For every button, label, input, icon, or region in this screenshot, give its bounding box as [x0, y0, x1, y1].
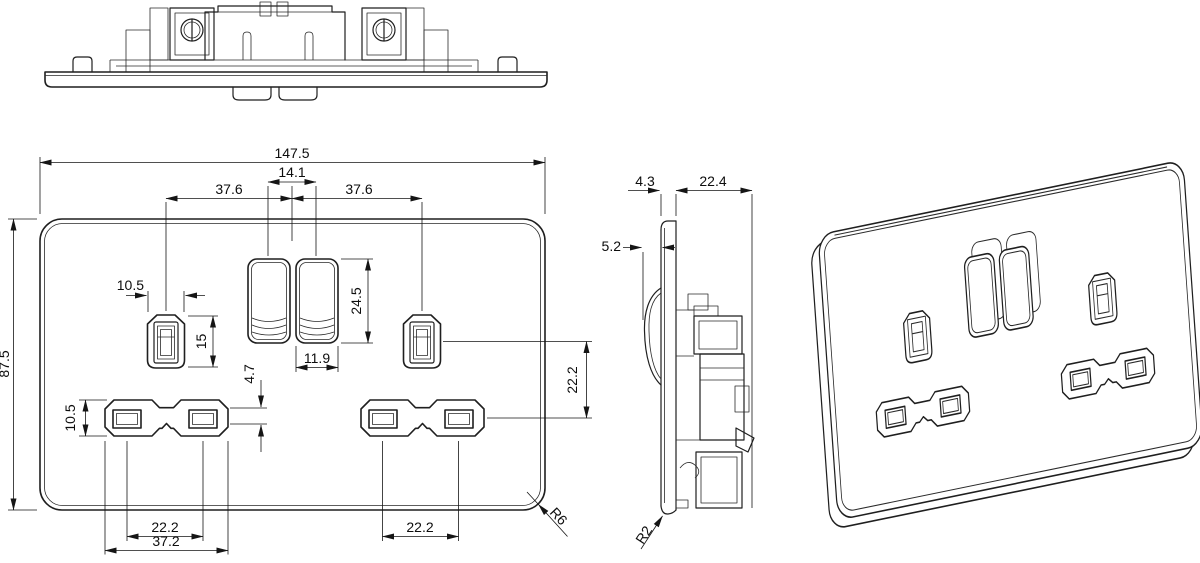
side-mechanism — [676, 294, 754, 508]
dim-bridge-height: 4.7 — [241, 364, 257, 384]
side-view: 4.3 22.4 5.2 R2 — [602, 173, 754, 549]
dim-plate-thickness: 4.3 — [635, 173, 655, 189]
dim-overall-height: 87.5 — [0, 350, 12, 377]
dim-earth-offset-left: 37.6 — [215, 181, 242, 197]
dim-mechanism-depth: 22.4 — [699, 173, 726, 189]
top-view-mechanism — [110, 2, 478, 72]
top-view-clip-left — [73, 57, 92, 72]
dim-earth-aperture-height: 15 — [193, 334, 209, 350]
dim-ln-pin-pitch-right: 22.2 — [406, 519, 433, 535]
top-view-clip-right — [498, 57, 517, 72]
top-view-post-right — [406, 8, 424, 60]
dim-earth-offset-right: 37.6 — [345, 181, 372, 197]
dim-ln-aperture-span: 37.2 — [152, 533, 179, 549]
dim-rocker-height: 24.5 — [348, 287, 364, 314]
dim-rocker-pitch: 14.1 — [278, 164, 305, 180]
top-view-post-left — [150, 8, 168, 60]
dim-rocker-protrusion: 5.2 — [602, 238, 622, 254]
dim-rocker-width: 11.9 — [304, 350, 330, 366]
top-view-rocker-right — [279, 87, 317, 100]
front-view: 147.5 14.1 37.6 37.6 10.5 15 — [0, 145, 592, 555]
top-view-screw-housing-right — [362, 8, 406, 60]
dim-earth-aperture-width: 10.5 — [117, 277, 144, 293]
dim-ln-aperture-height: 10.5 — [62, 404, 78, 431]
top-view-screw-housing-left — [170, 8, 214, 60]
side-faceplate-profile — [661, 221, 676, 514]
perspective-view — [810, 160, 1200, 530]
side-rocker-profile — [644, 288, 661, 385]
dim-overall-width: 147.5 — [274, 145, 309, 161]
top-view-rocker-left — [233, 87, 271, 100]
dim-edge-radius: R2 — [632, 523, 655, 547]
dim-earth-to-ln-pitch: 22.2 — [564, 366, 580, 393]
technical-drawing: 147.5 14.1 37.6 37.6 10.5 15 — [0, 0, 1200, 563]
top-view — [45, 2, 547, 100]
technical-drawing-page: 147.5 14.1 37.6 37.6 10.5 15 — [0, 0, 1200, 563]
side-dimensions: 4.3 22.4 5.2 R2 — [602, 173, 752, 549]
dim-corner-radius: R6 — [547, 504, 571, 528]
top-view-faceplate — [45, 72, 547, 87]
faceplate-front — [40, 219, 545, 510]
